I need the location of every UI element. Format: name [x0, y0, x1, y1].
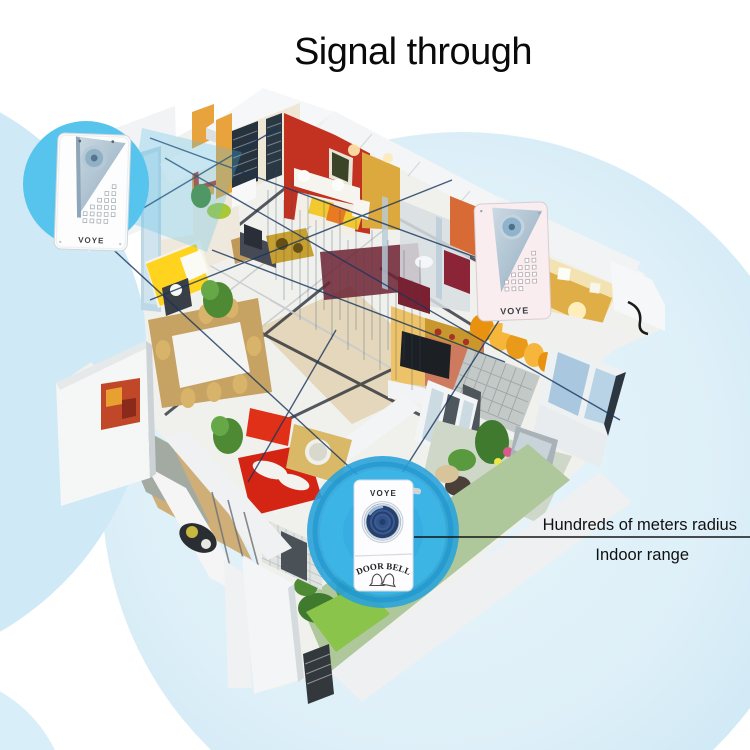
svg-text:Hundreds of meters radius: Hundreds of meters radius	[543, 516, 737, 534]
svg-text:VOYE: VOYE	[370, 489, 397, 498]
svg-text:VOYE: VOYE	[78, 236, 105, 246]
svg-text:VOYE: VOYE	[500, 305, 529, 316]
svg-text:Signal through: Signal through	[294, 31, 532, 73]
svg-text:Indoor range: Indoor range	[595, 546, 689, 564]
